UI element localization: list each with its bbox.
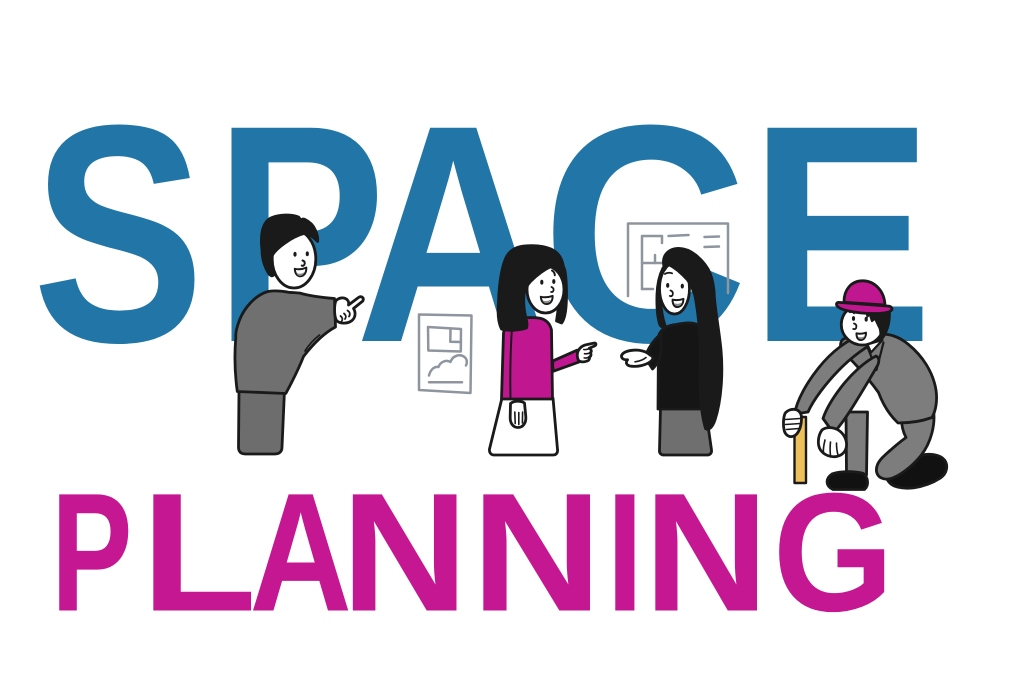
svg-text:A: A xyxy=(249,459,352,647)
svg-text:P: P xyxy=(51,459,132,647)
svg-text:N: N xyxy=(644,458,769,647)
svg-text:N: N xyxy=(341,458,468,647)
svg-text:L: L xyxy=(141,459,257,648)
svg-text:N: N xyxy=(471,458,602,647)
svg-text:S: S xyxy=(32,62,204,407)
svg-text:I: I xyxy=(606,458,643,647)
